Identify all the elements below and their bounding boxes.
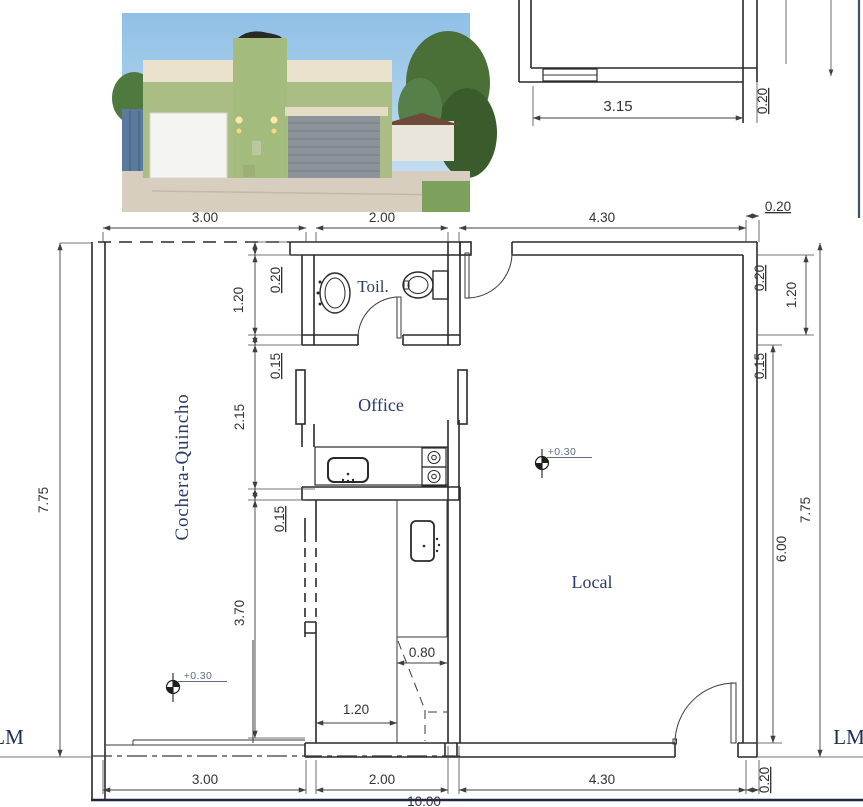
floor-plan-drawing: 3.15 0.20	[0, 0, 863, 807]
room-label-cochera: Cochera-Quincho	[172, 393, 193, 540]
dim-top-cochera: 3.00	[192, 210, 218, 225]
wall-light-icon	[271, 117, 278, 124]
laundry-tub-icon	[411, 521, 434, 561]
floor-plan-page: 3.15 0.20	[0, 0, 863, 807]
toilet-door-leaf	[397, 297, 401, 338]
closet-column	[397, 500, 447, 743]
boundary-label-lm-left: LM	[0, 725, 24, 749]
wc-tank	[433, 271, 448, 299]
room-labels: Cochera-Quincho Toil. Office Local LM LM	[0, 277, 863, 749]
dim-closet-width: 0.80	[409, 645, 435, 660]
level-value-local: +0.30	[548, 446, 577, 458]
dim-rc-total: 7.75	[798, 497, 813, 523]
dim-top-local: 4.30	[589, 210, 615, 225]
dim-bottom-toilet: 2.00	[369, 772, 395, 787]
local-top-door-leaf	[465, 253, 469, 298]
dim-top-wall: 0.20	[765, 199, 791, 214]
level-marker-cochera: +0.30	[167, 670, 228, 702]
level-markers: +0.30 +0.30	[167, 446, 593, 702]
room-label-office: Office	[358, 395, 404, 415]
wall-light-icon	[236, 117, 243, 124]
kitchen-sink-icon	[328, 458, 368, 482]
kitchen-fixtures	[315, 447, 448, 486]
level-marker-local: +0.30	[536, 446, 593, 478]
pilaster-right	[458, 370, 467, 424]
counter	[315, 447, 448, 485]
level-value-cochera: +0.30	[184, 670, 213, 682]
dashed-wall-projection	[305, 533, 316, 622]
dim-left-total: 7.75	[36, 487, 51, 513]
dim-lc-wall-kitchen: 0.15	[272, 506, 287, 532]
dim-upper-wall: 0.20	[755, 88, 770, 114]
dim-rc-local: 6.00	[774, 536, 789, 562]
dims-left: 7.75 0.20 1.20 0.15 2.15 0.15 3.70	[0, 242, 315, 757]
dims-bottom: 3.00 2.00 4.30 0.20 10.00	[103, 746, 772, 807]
door-arcs	[358, 253, 736, 744]
dim-lc-wall-top: 0.20	[268, 267, 283, 293]
pilaster-left	[296, 370, 305, 424]
dim-lc-cochera: 3.70	[232, 600, 247, 626]
stove-icon	[422, 448, 446, 486]
local-top-door-arc	[467, 253, 512, 298]
local-entry-door-leaf	[731, 683, 736, 743]
facade-tower	[233, 38, 287, 178]
dim-top-toilet: 2.00	[369, 210, 395, 225]
dim-rc-wall-mid: 0.15	[752, 353, 767, 379]
garage-door-white	[150, 113, 227, 178]
room-label-toilet: Toil.	[357, 277, 388, 296]
dim-bottom-total: 10.00	[407, 794, 441, 807]
dims-right: 0.20 1.20 0.15 6.00 7.75	[743, 243, 863, 757]
dim-opening-width: 1.20	[343, 702, 369, 717]
dim-upper-width: 3.15	[603, 98, 632, 115]
dims-inner: 0.80 1.20	[316, 645, 447, 723]
dim-lc-toilet: 1.20	[231, 287, 246, 313]
upper-partial-plan: 3.15 0.20	[519, 0, 831, 126]
toilet-door-arc	[358, 297, 399, 338]
dim-rc-wall-top: 0.20	[752, 265, 767, 291]
dim-lc-wall-mid: 0.15	[268, 353, 283, 379]
boundary-label-lm-right: LM	[833, 725, 863, 749]
dim-bottom-local: 4.30	[589, 772, 615, 787]
dim-lc-office: 2.15	[232, 404, 247, 430]
house-photo	[112, 13, 497, 212]
dim-rc-toilet: 1.20	[784, 282, 799, 308]
garage-front-lines	[105, 640, 305, 745]
dim-bottom-cochera: 3.00	[192, 772, 218, 787]
room-label-local: Local	[572, 572, 613, 592]
local-entry-door-arc	[675, 683, 735, 743]
dim-bottom-wall: 0.20	[757, 767, 772, 793]
